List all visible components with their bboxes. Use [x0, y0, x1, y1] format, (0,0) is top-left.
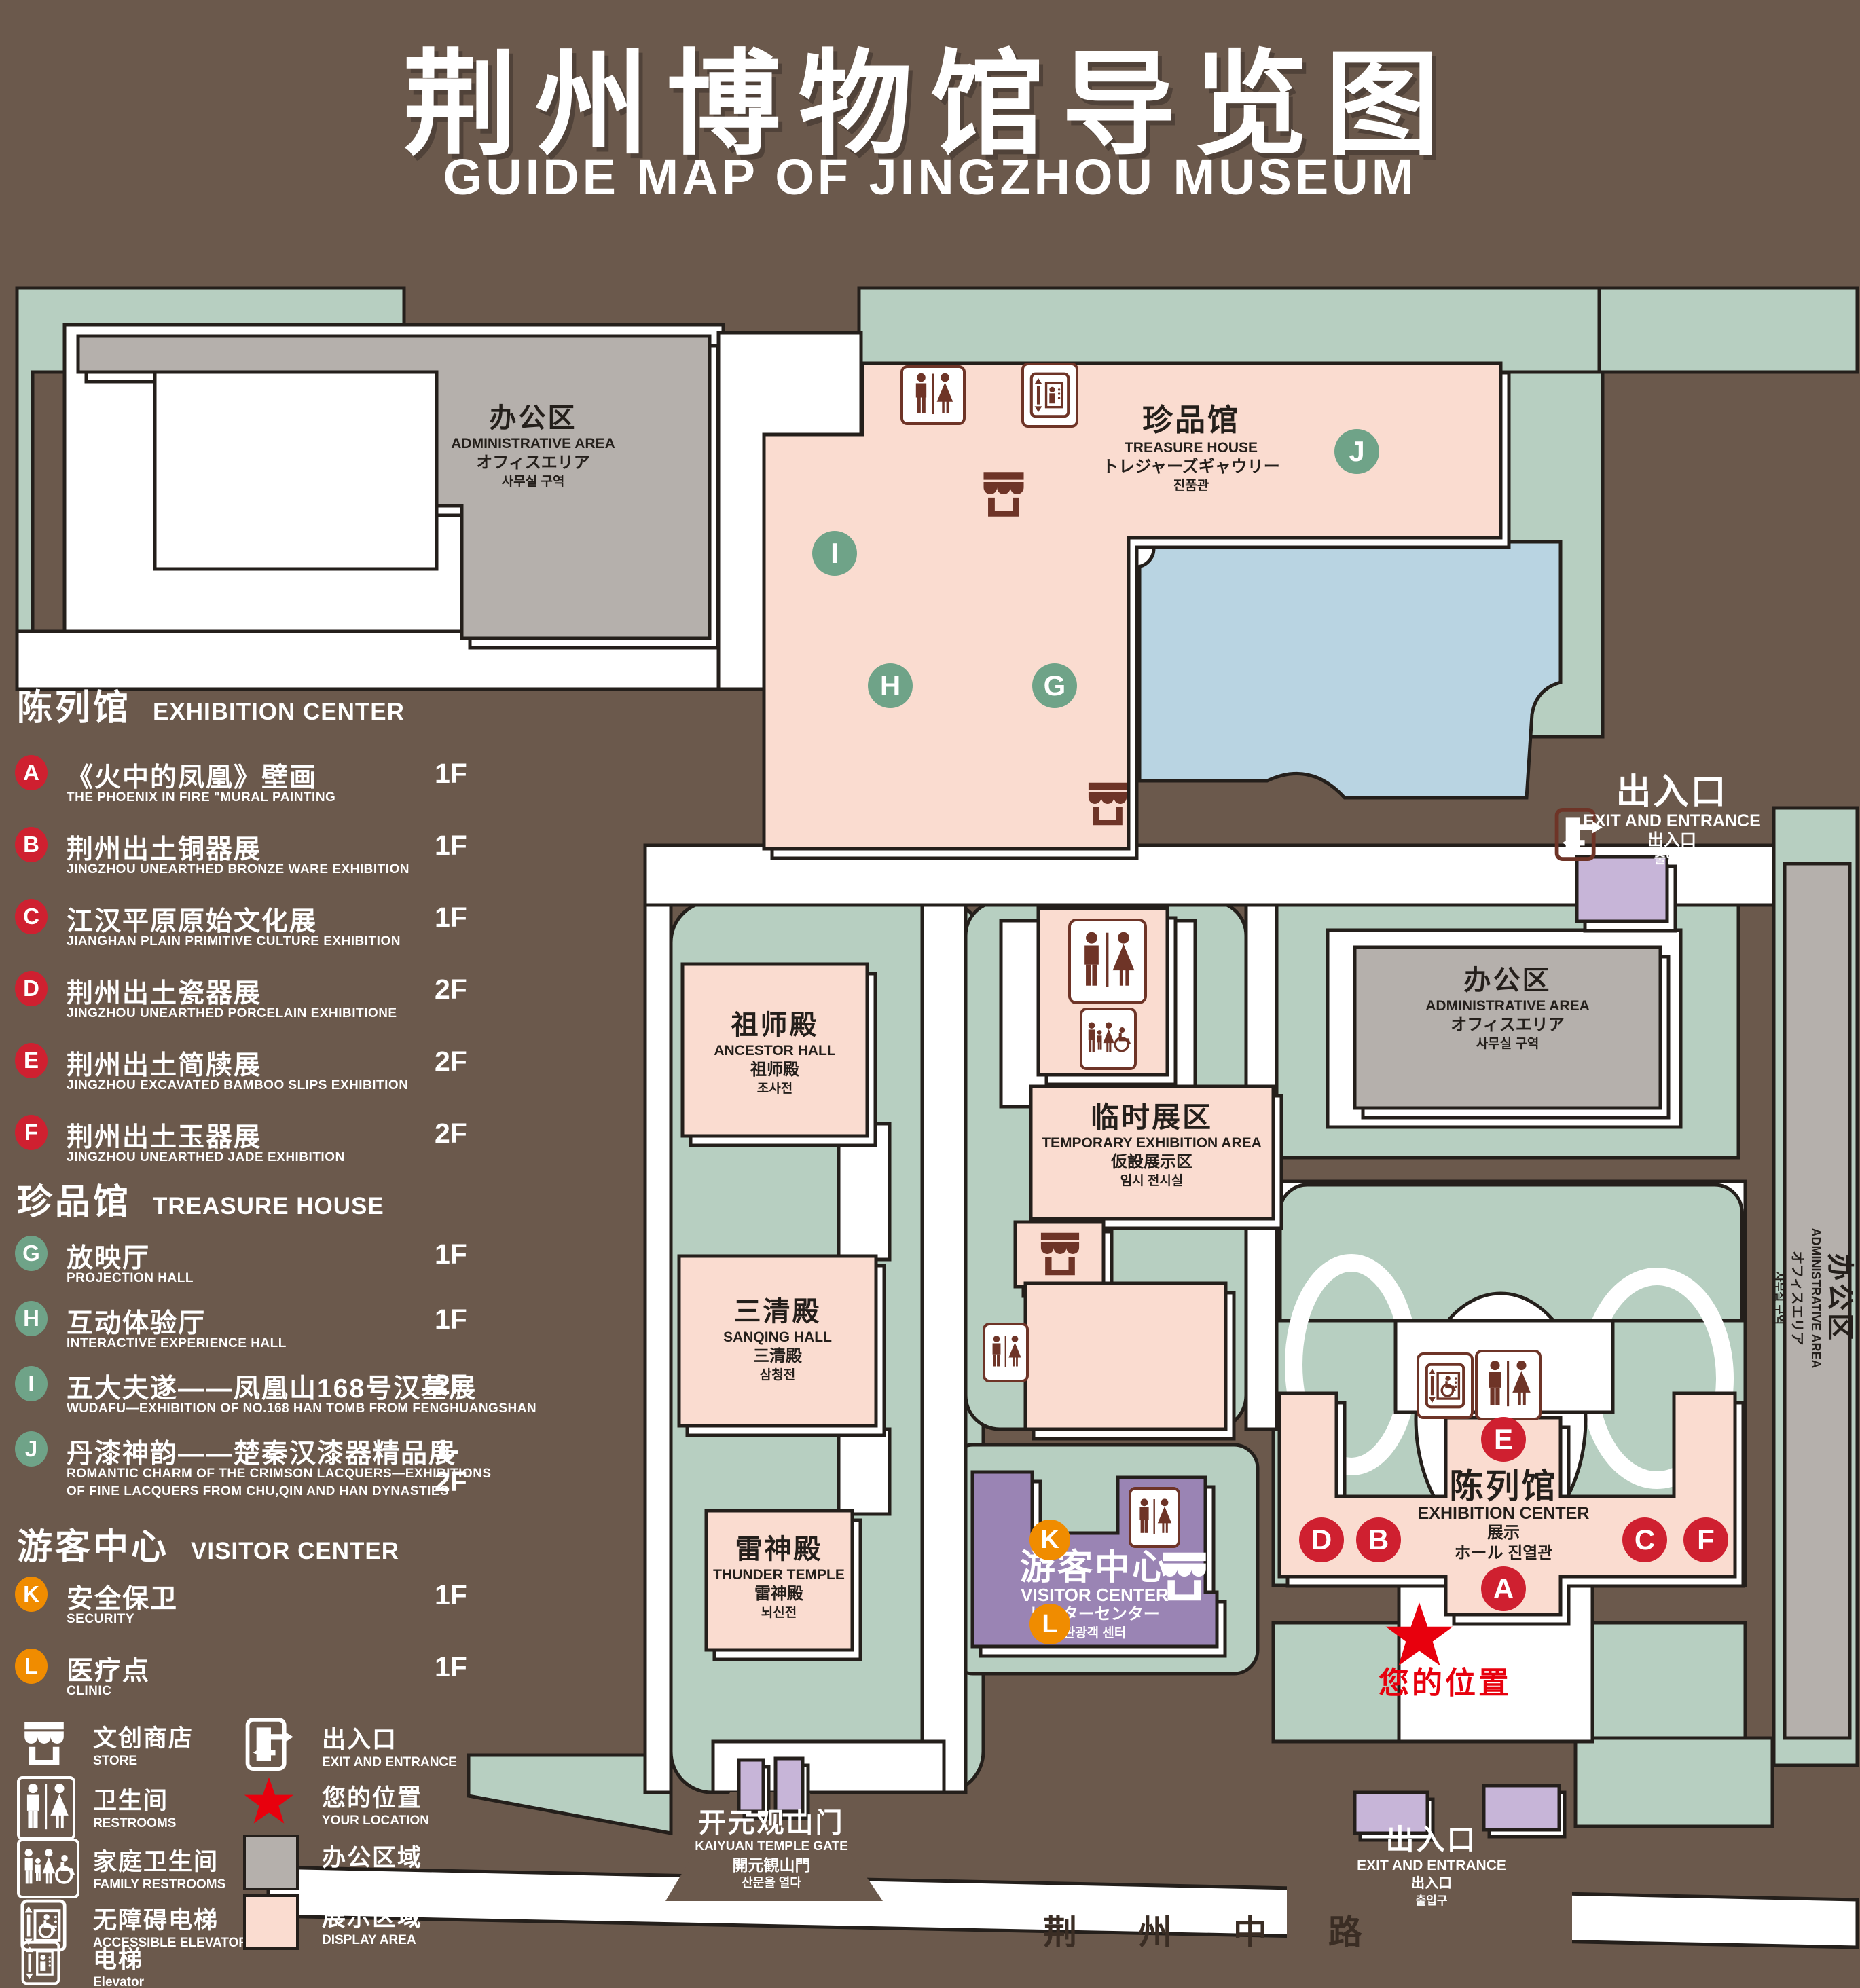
thunder-temple-label: 雷神殿 THUNDER TEMPLE 雷神殿 뇌신전: [713, 1533, 845, 1622]
legend-section-visitor-center: 游客中心VISITOR CENTER: [17, 1518, 399, 1569]
family-restrooms-icon: [17, 1839, 79, 1898]
pond: [1139, 542, 1561, 798]
exhibition-center-label: 陈列馆 EXHIBITION CENTER 展示 ホール 진열관: [1418, 1468, 1590, 1564]
marker-b: B: [1356, 1517, 1401, 1562]
sanqing-hall-label: 三清殿 SANQING HALL 三清殿 삼청전: [723, 1295, 832, 1384]
restrooms-icon: [902, 367, 964, 424]
elevator-icon: [17, 1940, 65, 1985]
marker-g: G: [1032, 663, 1077, 708]
restrooms-icon: [1476, 1351, 1540, 1419]
marker-h: H: [868, 663, 913, 708]
exit-icon: [243, 1716, 299, 1772]
admin-top-left-label: 办公区 ADMINISTRATIVE AREA オフィスエリア 사무실 구역: [451, 402, 615, 491]
display-corridor: [1025, 1283, 1226, 1429]
store-icon: [17, 1716, 71, 1771]
exit-top-label: 出入口 EXIT AND ENTRANCE 出入口 출입구: [1583, 773, 1761, 868]
marker-k: K: [1029, 1520, 1070, 1560]
marker-c: C: [1622, 1517, 1667, 1562]
restrooms-icon: [984, 1324, 1027, 1381]
marker-f: F: [1683, 1517, 1728, 1562]
your-location-label: 您的位置: [1379, 1658, 1512, 1702]
marker-i: I: [812, 531, 857, 576]
marker-d: D: [1299, 1517, 1344, 1562]
ancestor-hall-label: 祖师殿 ANCESTOR HALL 祖师殿 조사전: [714, 1009, 835, 1098]
exit-bottom-label: 出入口 EXIT AND ENTRANCE 出入口 출입구: [1357, 1824, 1506, 1910]
guide-map-poster: 荆州博物馆导览图 GUIDE MAP OF JINGZHOU MUSEUM 陈列…: [0, 0, 1860, 1988]
elevator-icon: [1023, 364, 1077, 426]
legend-store: 文创商店STORE: [17, 1716, 71, 1774]
legend-section-treasure-house: 珍品馆TREASURE HOUSE: [17, 1173, 384, 1224]
office-area-swatch: [243, 1835, 299, 1890]
store-kiosk: [1015, 1222, 1104, 1287]
page-subtitle: GUIDE MAP OF JINGZHOU MUSEUM: [0, 148, 1860, 206]
legend-exit: 出入口EXIT AND ENTRANCE: [243, 1716, 299, 1775]
admin-right-label: 办公区 ADMINISTRATIVE AREA オフィスエリア 사무실 구역: [1425, 964, 1590, 1053]
road-label: 荆 州 中 路: [1043, 1905, 1388, 1954]
admin-strip-label: 办公区 ADMINISTRATIVE AREA オフィスエリア 사무실 구역: [1772, 1054, 1860, 1543]
restrooms-icon: [1070, 920, 1146, 1003]
marker-l: L: [1029, 1604, 1070, 1644]
marker-j: J: [1334, 429, 1379, 474]
marker-e: E: [1481, 1417, 1526, 1462]
marker-a: A: [1481, 1566, 1526, 1611]
temporary-exhibition-label: 临时展区 TEMPORARY EXHIBITION AREA 仮設展示区 임시 …: [1042, 1101, 1262, 1190]
legend-elevator: 电梯Elevator: [17, 1940, 65, 1988]
legend-section-exhibition-center: 陈列馆EXHIBITION CENTER: [17, 679, 405, 730]
restrooms-icon: [1130, 1488, 1179, 1547]
accessible-elevator-icon: [1418, 1354, 1472, 1418]
legend-office-area: 办公区域OFFICE AREA: [243, 1835, 299, 1890]
legend-display-area: 展示区域DISPLAY AREA: [243, 1894, 299, 1950]
gate-label: 开元观山门 KAIYUAN TEMPLE GATE 開元観山門 산문을 열다: [695, 1807, 848, 1890]
restrooms-icon: [17, 1776, 75, 1840]
display-area-swatch: [243, 1894, 299, 1950]
your-location-icon: [243, 1776, 295, 1828]
family-restrooms-icon: [1081, 1009, 1135, 1069]
legend-restrooms: 卫生间RESTROOMS: [17, 1776, 75, 1843]
legend-your-location: 您的位置YOUR LOCATION: [243, 1776, 295, 1831]
treasure-house-label: 珍品馆 TREASURE HOUSE トレジャーズギャウリー 진품관: [1102, 402, 1280, 495]
legend-family-restrooms: 家庭卫生间FAMILY RESTROOMS: [17, 1839, 79, 1902]
